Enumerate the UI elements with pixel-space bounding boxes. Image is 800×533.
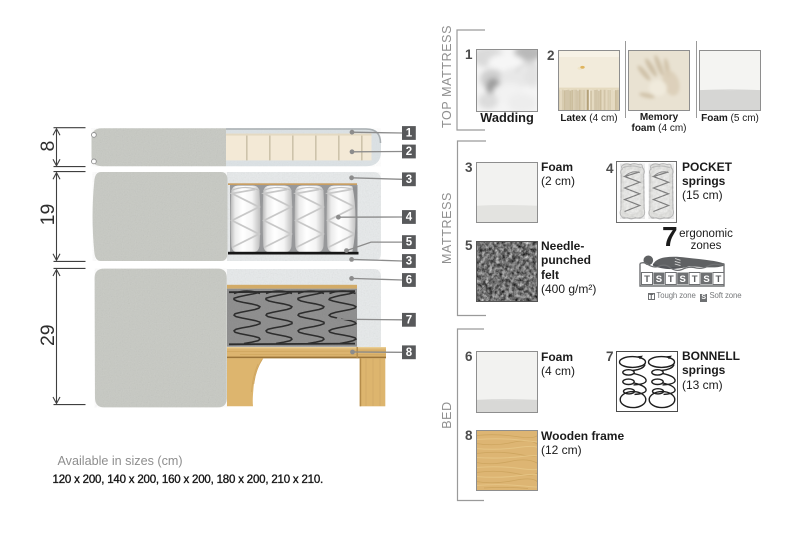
svg-text:T: T (715, 274, 721, 285)
svg-text:7: 7 (406, 314, 412, 326)
svg-text:8: 8 (406, 347, 413, 359)
svg-text:4: 4 (406, 212, 413, 224)
svg-text:S: S (656, 274, 662, 285)
svg-text:1: 1 (406, 128, 413, 140)
svg-text:T: T (668, 274, 674, 285)
svg-text:3: 3 (406, 174, 412, 186)
svg-text:T: T (692, 274, 698, 285)
svg-text:29: 29 (37, 324, 59, 346)
svg-text:19: 19 (37, 204, 59, 226)
svg-text:S: S (703, 274, 709, 285)
svg-text:8: 8 (37, 141, 59, 152)
svg-text:5: 5 (406, 237, 413, 249)
svg-text:3: 3 (406, 256, 412, 268)
svg-text:2: 2 (406, 146, 412, 158)
svg-text:S: S (680, 274, 686, 285)
svg-text:6: 6 (406, 275, 412, 287)
svg-text:T: T (644, 274, 650, 285)
